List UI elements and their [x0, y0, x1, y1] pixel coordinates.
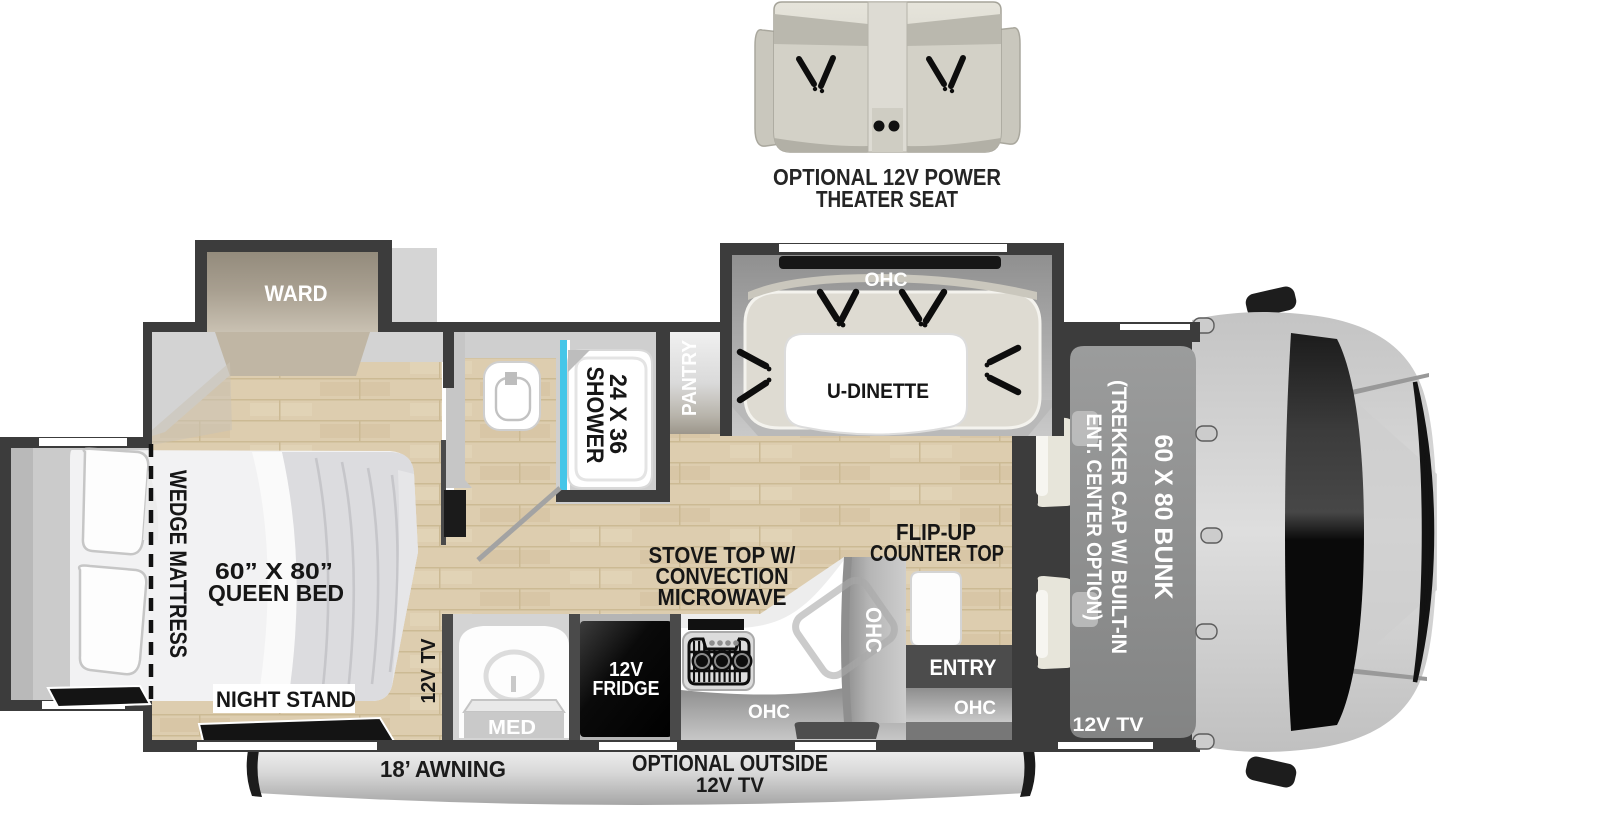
svg-text:THEATER SEAT: THEATER SEAT: [816, 186, 958, 212]
svg-text:(TREKKER CAP W/ BUILT-IN: (TREKKER CAP W/ BUILT-IN: [1107, 380, 1130, 654]
svg-text:FRIDGE: FRIDGE: [593, 678, 660, 700]
svg-text:ENT. CENTER OPTION): ENT. CENTER OPTION): [1082, 414, 1105, 621]
svg-text:OHC: OHC: [861, 607, 886, 653]
svg-text:OHC: OHC: [954, 698, 996, 719]
svg-text:60 X 80 BUNK: 60 X 80 BUNK: [1149, 435, 1177, 600]
svg-text:WEDGE MATTRESS: WEDGE MATTRESS: [164, 470, 191, 658]
svg-text:U-DINETTE: U-DINETTE: [827, 380, 929, 403]
svg-text:OPTIONAL OUTSIDE: OPTIONAL OUTSIDE: [632, 750, 828, 776]
svg-text:18’ AWNING: 18’ AWNING: [380, 756, 506, 782]
svg-text:NIGHT STAND: NIGHT STAND: [216, 687, 356, 712]
svg-text:OHC: OHC: [865, 270, 908, 291]
svg-text:12V TV: 12V TV: [418, 638, 440, 704]
svg-text:ENTRY: ENTRY: [930, 655, 997, 680]
svg-text:12V TV: 12V TV: [1073, 715, 1144, 736]
svg-text:SHOWER: SHOWER: [581, 367, 608, 464]
svg-text:COUNTER TOP: COUNTER TOP: [870, 540, 1004, 566]
svg-text:MICROWAVE: MICROWAVE: [658, 584, 787, 610]
svg-text:QUEEN BED: QUEEN BED: [208, 580, 344, 606]
svg-text:PANTRY: PANTRY: [679, 339, 701, 416]
svg-text:WARD: WARD: [265, 281, 328, 306]
svg-text:OHC: OHC: [748, 702, 790, 723]
svg-text:12V TV: 12V TV: [696, 774, 764, 797]
svg-text:MED: MED: [488, 717, 536, 739]
